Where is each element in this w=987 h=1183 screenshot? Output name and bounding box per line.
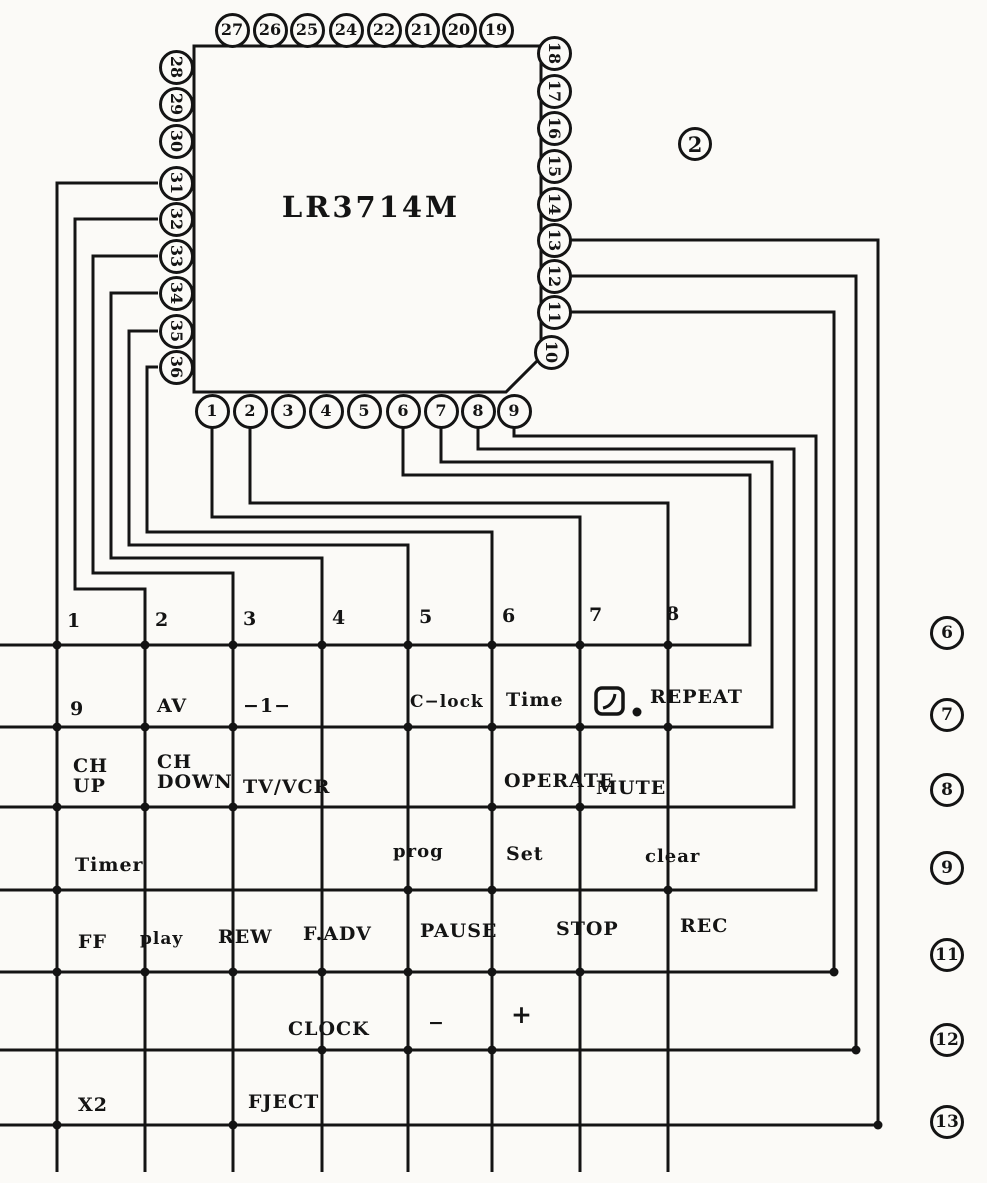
row-pin-badge-7: 7 xyxy=(930,698,964,732)
pin-30: 30 xyxy=(159,124,194,159)
key-rew: REW xyxy=(218,927,273,947)
pin-19: 19 xyxy=(479,13,514,48)
pin-36: 36 xyxy=(159,350,194,385)
key-junction-dot xyxy=(488,968,497,977)
pin-number: 15 xyxy=(546,155,562,177)
key-junction-dot xyxy=(404,1046,413,1055)
pin-4: 4 xyxy=(309,394,344,429)
key-junction-dot xyxy=(53,641,62,650)
key-junction-dot xyxy=(53,723,62,732)
key-junction-dot xyxy=(53,968,62,977)
key-mute: MUTE xyxy=(596,778,666,798)
pin-16: 16 xyxy=(537,111,572,146)
pin-33: 33 xyxy=(159,239,194,274)
pin-number: 28 xyxy=(168,56,184,78)
key-junction-dot xyxy=(488,641,497,650)
key-junction-dot xyxy=(229,968,238,977)
row-pin-number: 12 xyxy=(935,1032,959,1049)
pin-number: 26 xyxy=(259,22,281,38)
row-pin-badge-12: 12 xyxy=(930,1023,964,1057)
key-clock: CLOCK xyxy=(288,1019,370,1039)
key-junction-dot xyxy=(318,1046,327,1055)
pin-28: 28 xyxy=(159,50,194,85)
repeat-bullet-dot xyxy=(633,708,642,717)
pin-number: 33 xyxy=(168,245,184,267)
pin-34: 34 xyxy=(159,276,194,311)
pin-number: 13 xyxy=(546,229,562,251)
key-junction-dot xyxy=(53,1121,62,1130)
row-pin-number: 7 xyxy=(941,707,953,724)
pin-6: 6 xyxy=(386,394,421,429)
row-pin-number: 9 xyxy=(941,860,953,877)
key-play: play xyxy=(140,929,183,949)
row-pin-badge-11: 11 xyxy=(930,938,964,972)
pin-number: 35 xyxy=(168,320,184,342)
key-4: 4 xyxy=(332,608,346,628)
pin-number: 21 xyxy=(411,22,433,38)
repeat-key-icon-glyph xyxy=(603,694,615,708)
key-7: 7 xyxy=(589,605,603,625)
pin-number: 36 xyxy=(168,356,184,378)
key-1: 1 xyxy=(67,611,81,631)
wire-6 xyxy=(212,428,580,1172)
pin-8: 8 xyxy=(461,394,496,429)
key-junction-dot xyxy=(229,723,238,732)
pin-number: 22 xyxy=(373,22,395,38)
key-junction-dot xyxy=(488,886,497,895)
pin-number: 31 xyxy=(168,172,184,194)
key-rec: REC xyxy=(680,916,728,936)
pin-9: 9 xyxy=(497,394,532,429)
pin-number: 12 xyxy=(546,265,562,287)
pin-number: 17 xyxy=(546,80,562,102)
key-: − xyxy=(428,1013,445,1033)
pin-2: 2 xyxy=(233,394,268,429)
pin-number: 10 xyxy=(543,341,559,363)
row-pin-number: 8 xyxy=(941,782,953,799)
key-time: Time xyxy=(506,690,564,710)
key-junction-dot xyxy=(53,886,62,895)
key-junction-dot xyxy=(488,1046,497,1055)
pin-number: 32 xyxy=(168,208,184,230)
wire-1 xyxy=(75,219,158,1172)
key-junction-dot xyxy=(318,968,327,977)
pin-3: 3 xyxy=(271,394,306,429)
key-5: 5 xyxy=(419,607,433,627)
key-junction-dot xyxy=(664,886,673,895)
pin-14: 14 xyxy=(537,187,572,222)
pin-32: 32 xyxy=(159,202,194,237)
key-fject: FJECT xyxy=(248,1092,319,1112)
pin-20: 20 xyxy=(442,13,477,48)
key-junction-dot xyxy=(141,723,150,732)
key-3: 3 xyxy=(243,609,257,629)
pin-number: 11 xyxy=(546,301,562,323)
key-junction-dot xyxy=(852,1046,861,1055)
pin-number: 6 xyxy=(397,403,408,419)
row-pin-badge-8: 8 xyxy=(930,773,964,807)
key-junction-dot xyxy=(404,641,413,650)
pin-number: 30 xyxy=(168,130,184,152)
pin-number: 2 xyxy=(244,403,255,419)
key-junction-dot xyxy=(830,968,839,977)
key-stop: STOP xyxy=(556,919,619,939)
pin-number: 34 xyxy=(168,282,184,304)
pin-number: 27 xyxy=(221,22,243,38)
key-set: Set xyxy=(506,844,544,864)
key-junction-dot xyxy=(664,723,673,732)
pin-31: 31 xyxy=(159,166,194,201)
pin-number: 25 xyxy=(296,22,318,38)
wiring-canvas xyxy=(0,0,987,1183)
pin-number: 16 xyxy=(546,117,562,139)
schematic-page: LR3714M 2 272625242221201918171615141312… xyxy=(0,0,987,1183)
row-pin-number: 13 xyxy=(935,1114,959,1131)
key-ch-down: CH DOWN xyxy=(157,752,233,792)
pin-number: 9 xyxy=(508,403,519,419)
key-junction-dot xyxy=(488,723,497,732)
pin-number: 7 xyxy=(435,403,446,419)
pin-15: 15 xyxy=(537,149,572,184)
pin-1: 1 xyxy=(195,394,230,429)
pin-25: 25 xyxy=(290,13,325,48)
key-prog: prog xyxy=(393,842,444,862)
pin-number: 18 xyxy=(546,42,562,64)
key-2: 2 xyxy=(155,610,169,630)
row-pin-badge-6: 6 xyxy=(930,616,964,650)
pin-18: 18 xyxy=(537,36,572,71)
key-tv-vcr: TV/VCR xyxy=(243,777,330,797)
pin-7: 7 xyxy=(424,394,459,429)
pin-29: 29 xyxy=(159,87,194,122)
pin-number: 20 xyxy=(448,22,470,38)
key-junction-dot xyxy=(53,803,62,812)
key-1: −1− xyxy=(243,696,291,716)
key-: + xyxy=(511,1005,533,1025)
pin-21: 21 xyxy=(405,13,440,48)
key-ch-up: CH UP xyxy=(73,756,108,796)
key-9: 9 xyxy=(70,699,84,719)
repeat-key-icon xyxy=(596,688,623,714)
key-x2: X2 xyxy=(78,1095,108,1115)
pin-number: 3 xyxy=(282,403,293,419)
chip-part-number: LR3714M xyxy=(256,190,486,224)
figure-number: 2 xyxy=(688,132,703,157)
pin-number: 19 xyxy=(485,22,507,38)
key-av: AV xyxy=(157,696,187,716)
row-pin-number: 6 xyxy=(941,625,953,642)
pin-number: 24 xyxy=(335,22,357,38)
pin-number: 14 xyxy=(546,193,562,215)
key-junction-dot xyxy=(488,803,497,812)
key-junction-dot xyxy=(576,803,585,812)
key-junction-dot xyxy=(576,723,585,732)
key-junction-dot xyxy=(404,723,413,732)
pin-26: 26 xyxy=(253,13,288,48)
key-timer: Timer xyxy=(75,855,144,875)
pin-12: 12 xyxy=(537,259,572,294)
key-pause: PAUSE xyxy=(420,921,497,941)
key-junction-dot xyxy=(141,968,150,977)
key-c-lock: C−lock xyxy=(410,692,484,712)
key-junction-dot xyxy=(229,1121,238,1130)
key-junction-dot xyxy=(318,641,327,650)
pin-13: 13 xyxy=(537,223,572,258)
key-f-adv: F.ADV xyxy=(303,924,372,944)
key-8: 8 xyxy=(666,604,680,624)
key-junction-dot xyxy=(664,641,673,650)
figure-number-badge: 2 xyxy=(678,127,712,161)
key-junction-dot xyxy=(141,803,150,812)
wire-14 xyxy=(0,240,878,1125)
pin-number: 4 xyxy=(320,403,331,419)
key-junction-dot xyxy=(229,803,238,812)
wire-9 xyxy=(0,428,772,727)
key-junction-dot xyxy=(141,641,150,650)
key-junction-dot xyxy=(576,968,585,977)
key-clear: clear xyxy=(645,847,700,867)
pin-11: 11 xyxy=(537,295,572,330)
key-junction-dot xyxy=(404,968,413,977)
key-junction-dot xyxy=(229,641,238,650)
row-pin-number: 11 xyxy=(935,947,959,964)
key-junction-dot xyxy=(404,886,413,895)
key-junction-dot xyxy=(874,1121,883,1130)
pin-17: 17 xyxy=(537,74,572,109)
key-ff: FF xyxy=(78,932,107,952)
pin-27: 27 xyxy=(215,13,250,48)
pin-35: 35 xyxy=(159,314,194,349)
pin-number: 1 xyxy=(206,403,217,419)
pin-number: 8 xyxy=(472,403,483,419)
pin-5: 5 xyxy=(347,394,382,429)
wire-7 xyxy=(250,428,668,1172)
pin-22: 22 xyxy=(367,13,402,48)
pin-number: 29 xyxy=(168,93,184,115)
key-junction-dot xyxy=(576,641,585,650)
row-pin-badge-13: 13 xyxy=(930,1105,964,1139)
pin-24: 24 xyxy=(329,13,364,48)
pin-number: 5 xyxy=(358,403,369,419)
row-pin-badge-9: 9 xyxy=(930,851,964,885)
pin-10: 10 xyxy=(534,335,569,370)
key-6: 6 xyxy=(502,606,516,626)
key-repeat: REPEAT xyxy=(650,687,743,707)
